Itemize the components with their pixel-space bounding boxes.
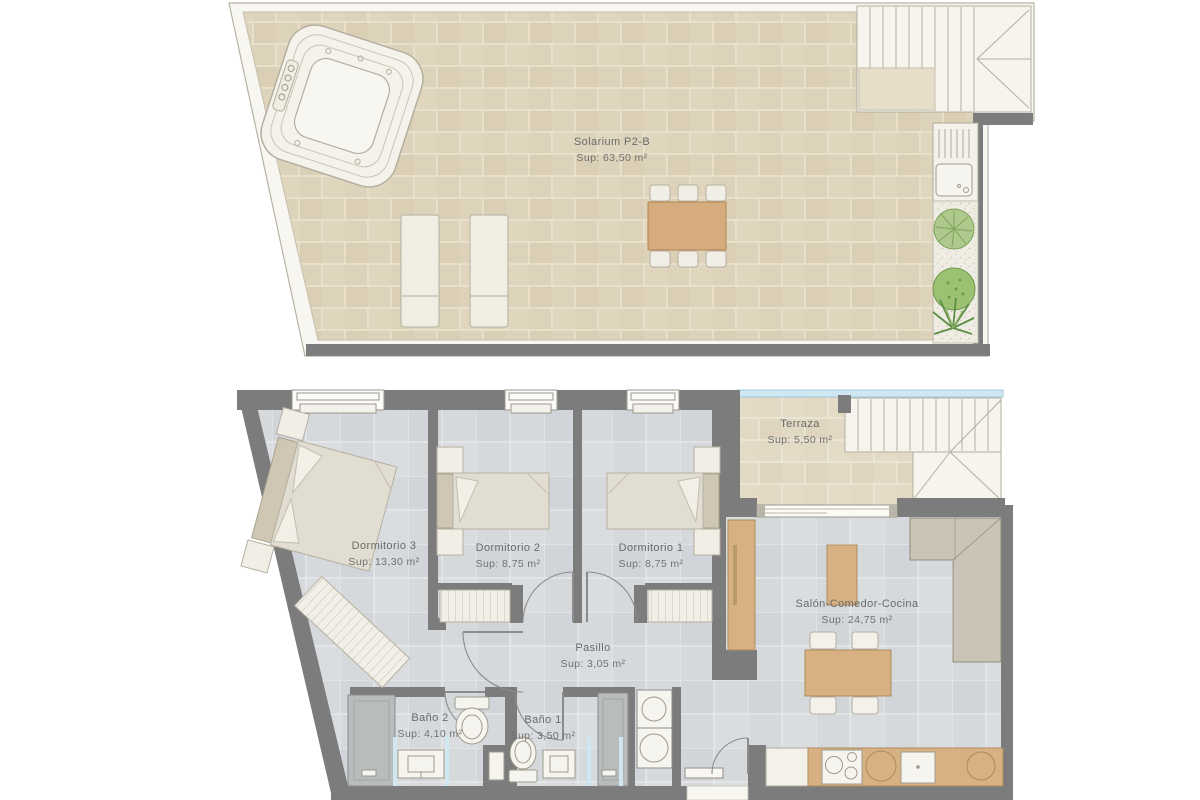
room-area: Sup: 3,50 m² <box>511 728 576 744</box>
closet <box>648 590 712 622</box>
room-label-solarium: Solarium P2-B Sup: 63,50 m² <box>574 134 650 166</box>
room-name: Solarium P2-B <box>574 134 650 150</box>
nightstand <box>694 529 720 555</box>
room-label-dormitorio-2: Dormitorio 2 Sup: 8,75 m² <box>476 540 541 572</box>
room-label-dormitorio-1: Dormitorio 1 Sup: 8,75 m² <box>619 540 684 572</box>
kitchen-counter <box>766 748 1003 786</box>
bathroom-partition-panel <box>489 752 504 780</box>
room-area: Sup: 8,75 m² <box>619 556 684 572</box>
solarium-stairs <box>857 6 1031 112</box>
nightstand <box>437 529 463 555</box>
nightstand <box>241 540 274 573</box>
room-name: Salón-Comedor-Cocina <box>796 596 919 612</box>
room-name: Terraza <box>768 416 833 432</box>
room-area: Sup: 13,30 m² <box>348 554 419 570</box>
apartment-plan <box>237 390 1013 800</box>
room-name: Dormitorio 1 <box>619 540 684 556</box>
closet <box>440 590 510 622</box>
window-icon <box>627 390 679 413</box>
room-label-terraza: Terraza Sup: 5,50 m² <box>768 416 833 448</box>
tall-wardrobe <box>728 520 755 650</box>
room-label-salon: Salón-Comedor-Cocina Sup: 24,75 m² <box>796 596 919 628</box>
room-label-bano-2: Baño 2 Sup: 4,10 m² <box>398 710 463 742</box>
nightstand <box>437 447 463 473</box>
room-area: Sup: 3,05 m² <box>561 656 626 672</box>
room-name: Baño 2 <box>398 710 463 726</box>
terraza-glass-railing <box>737 390 1003 397</box>
floorplan-page: Solarium P2-B Sup: 63,50 m² Terraza Sup:… <box>0 0 1200 800</box>
room-label-dormitorio-3: Dormitorio 3 Sup: 13,30 m² <box>348 538 419 570</box>
room-label-pasillo: Pasillo Sup: 3,05 m² <box>561 640 626 672</box>
outdoor-sink-counter <box>933 123 978 201</box>
window-icon <box>292 390 384 413</box>
nightstand <box>694 447 720 473</box>
window-icon <box>505 390 557 413</box>
outdoor-dining-table <box>648 185 726 267</box>
bush-icon <box>933 268 975 310</box>
planter-strip <box>933 201 978 343</box>
room-area: Sup: 24,75 m² <box>796 612 919 628</box>
washbasin-icon <box>543 750 575 778</box>
floorplan-drawing <box>0 0 1200 800</box>
room-area: Sup: 5,50 m² <box>768 432 833 448</box>
room-name: Dormitorio 3 <box>348 538 419 554</box>
bush-icon <box>934 209 974 249</box>
room-name: Dormitorio 2 <box>476 540 541 556</box>
room-label-bano-1: Baño 1 Sup: 3,50 m² <box>511 712 576 744</box>
sliding-door <box>757 505 897 517</box>
room-name: Baño 1 <box>511 712 576 728</box>
room-area: Sup: 63,50 m² <box>574 150 650 166</box>
room-area: Sup: 8,75 m² <box>476 556 541 572</box>
solarium-plan <box>229 3 1034 356</box>
room-name: Pasillo <box>561 640 626 656</box>
stove-icon <box>822 750 862 784</box>
sink-icon <box>901 752 935 783</box>
washbasin-icon <box>398 750 444 778</box>
entry-threshold <box>687 786 748 800</box>
room-area: Sup: 4,10 m² <box>398 726 463 742</box>
washer-dryer-stack <box>637 690 672 768</box>
